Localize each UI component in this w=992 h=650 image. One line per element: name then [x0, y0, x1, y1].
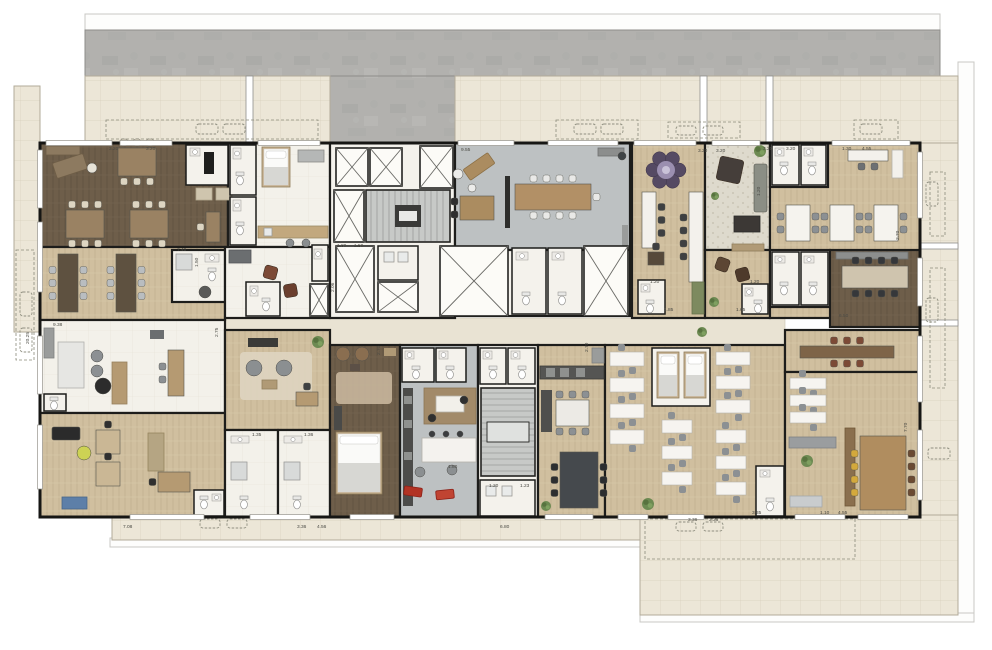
chair [812, 226, 819, 233]
dimension-label: 4.56 [317, 524, 327, 530]
chair [82, 240, 89, 247]
plant-icon [714, 301, 718, 305]
toilet-bowl [810, 286, 817, 295]
sink-basin [441, 353, 446, 358]
toilet-bowl [781, 166, 788, 175]
table [158, 472, 190, 492]
plant-icon [702, 331, 706, 335]
chair [733, 444, 740, 451]
window-strip [618, 515, 648, 520]
chair [799, 370, 806, 377]
dimension-label: 1.80 [448, 464, 458, 470]
dimension-label: 6.80 [500, 524, 510, 530]
window-strip [130, 515, 204, 520]
table [556, 400, 589, 426]
chair [871, 163, 878, 170]
chair [556, 175, 563, 182]
chair [851, 450, 858, 457]
table [168, 350, 184, 396]
concrete-roof-band [330, 76, 455, 143]
furniture-rect [112, 362, 127, 404]
table [842, 266, 908, 288]
dimension-label: 3.20 [716, 148, 726, 154]
sink-basin [747, 290, 752, 295]
chair [451, 198, 458, 205]
table [860, 436, 906, 510]
sink-basin [193, 150, 198, 155]
chair [680, 240, 687, 247]
window-strip [46, 141, 112, 146]
desk [790, 412, 826, 423]
chair [569, 391, 576, 398]
furniture-rect [576, 368, 585, 377]
chair [908, 450, 915, 457]
chair [569, 212, 576, 219]
furniture-rect [248, 338, 278, 347]
toilet-tank [262, 298, 270, 302]
table [96, 430, 120, 454]
chair [138, 267, 145, 274]
terrace-divider-wall [920, 243, 958, 249]
desk [716, 400, 750, 413]
dimension-label: 1.50 [194, 257, 200, 267]
chair [908, 489, 915, 496]
window-strip [350, 515, 394, 520]
chair-round [199, 286, 211, 298]
window-strip [258, 141, 320, 146]
chair [556, 428, 563, 435]
toilet-tank [446, 366, 454, 370]
stair-landing [487, 422, 529, 442]
window-strip [918, 336, 923, 402]
table [66, 210, 104, 238]
furniture-rect [150, 330, 164, 339]
furniture-rect [264, 228, 272, 236]
window-strip [858, 515, 908, 520]
parapet-wall [85, 14, 940, 30]
furniture-rect [196, 188, 212, 200]
table [689, 192, 703, 282]
chair-round [468, 184, 476, 192]
toilet-tank [646, 300, 654, 304]
chair [658, 204, 665, 211]
chair [856, 213, 863, 220]
dimension-label: 1.10 [820, 510, 830, 516]
toilet-bowl [413, 370, 420, 379]
chair [777, 226, 784, 233]
dimension-label: 3.20 [109, 146, 119, 152]
dimension-label: 3.20 [786, 146, 796, 152]
toilet-tank [808, 162, 816, 166]
toilet-bowl [237, 176, 244, 185]
chair [878, 257, 885, 264]
terrace-divider-wall [920, 320, 958, 326]
table [58, 254, 78, 312]
window-strip [832, 141, 910, 146]
chair [147, 178, 154, 185]
chair [133, 201, 140, 208]
chair-round [429, 431, 435, 437]
window-strip [634, 141, 696, 146]
chair [600, 490, 607, 497]
dimension-label: 1.23 [520, 483, 530, 489]
dimension-label: 2.06 [330, 282, 336, 292]
toilet-bowl [519, 370, 526, 379]
furniture-rect [231, 462, 247, 480]
dimension-label: 1.36 [304, 432, 314, 438]
dimension-label: 1.50 [354, 243, 364, 249]
chair [679, 460, 686, 467]
sink-basin [777, 150, 782, 155]
chair [810, 424, 817, 431]
dimension-label: 1.20 [756, 186, 762, 196]
desk [610, 430, 644, 444]
furniture-rect [436, 396, 464, 412]
table [786, 205, 810, 241]
furniture-rect [262, 380, 277, 389]
chair [865, 226, 872, 233]
chair [49, 267, 56, 274]
dimension-label: 1.20 [650, 279, 660, 285]
dimension-label: 4.55 [838, 510, 848, 516]
window-strip [918, 258, 923, 306]
plant-icon [807, 460, 812, 465]
desk [610, 404, 644, 418]
chair-round [618, 152, 626, 160]
dimension-label: 7.08 [123, 524, 133, 530]
chair [865, 213, 872, 220]
window-strip [250, 515, 310, 520]
chair [900, 226, 907, 233]
terrace-divider-wall [700, 76, 707, 143]
sink-basin [556, 254, 561, 259]
sink-basin [806, 150, 811, 155]
chair [80, 280, 87, 287]
window-strip [918, 430, 923, 500]
sink-basin [214, 495, 218, 499]
sink-basin [778, 257, 782, 261]
chair-round [302, 239, 310, 247]
toilet-tank [412, 366, 420, 370]
chair [49, 280, 56, 287]
chair [556, 391, 563, 398]
toilet-bowl [755, 304, 762, 313]
window-strip [712, 141, 760, 146]
toilet-bowl [209, 272, 216, 281]
dimension-label: 2.70 [584, 342, 590, 352]
sink-basin [643, 286, 648, 291]
floor-plan-svg: 9.553.203.203.203.201.304.551.207.401.50… [0, 0, 992, 650]
dimension-label: 3.36 [688, 517, 698, 523]
toilet-bowl [809, 166, 816, 175]
chair [107, 293, 114, 300]
chair [900, 213, 907, 220]
chair [82, 201, 89, 208]
plant-icon [697, 327, 707, 337]
parapet-wall [958, 62, 974, 622]
chair [722, 474, 729, 481]
chair [865, 257, 872, 264]
chair [858, 163, 865, 170]
toilet-bowl [767, 502, 774, 511]
chair [582, 428, 589, 435]
chair [724, 344, 731, 351]
plant-icon [711, 192, 719, 200]
plant-icon [313, 338, 318, 343]
furniture-rect-rotated [403, 486, 422, 497]
dimension-label: 3.35 [752, 510, 762, 516]
toilet-bowl [559, 296, 566, 305]
chair [159, 363, 166, 370]
dimension-label: 1.65 [736, 307, 746, 313]
window-strip [38, 425, 43, 489]
chair [138, 280, 145, 287]
chair [304, 383, 311, 390]
chair [49, 293, 56, 300]
furniture-rect [404, 452, 412, 460]
dimension-label: 3.36 [297, 524, 307, 530]
chair [582, 391, 589, 398]
chair-round [91, 365, 103, 377]
toilet-bowl [201, 500, 208, 509]
sink-basin [291, 437, 295, 441]
desk [716, 376, 750, 389]
terrace-left-strip [14, 86, 40, 332]
toilet-tank [236, 172, 244, 176]
chair [844, 337, 851, 344]
furniture-rect [692, 282, 704, 314]
table [460, 196, 494, 220]
toilet-tank [208, 268, 216, 272]
window-strip [458, 141, 514, 146]
bed-blanket [659, 375, 677, 396]
plant-icon [643, 500, 648, 505]
chair [831, 337, 838, 344]
pouf [283, 283, 298, 298]
furniture-rect [789, 437, 836, 448]
plant-icon [802, 457, 807, 462]
toilet-tank [558, 292, 566, 296]
dimension-label: 3.20 [763, 146, 773, 152]
window-strip [545, 515, 593, 520]
chair-round [95, 378, 111, 394]
toilet-tank [754, 300, 762, 304]
chair [159, 201, 166, 208]
chair-round [355, 347, 369, 361]
chair [95, 240, 102, 247]
plant-icon [712, 193, 716, 197]
chair [680, 214, 687, 221]
dimension-label: 6.50 [839, 313, 849, 319]
chair [821, 226, 828, 233]
chair [724, 392, 731, 399]
plant-icon [710, 298, 715, 303]
chair [629, 419, 636, 426]
chair [821, 213, 828, 220]
chair-round [415, 467, 425, 477]
chair [856, 226, 863, 233]
dimension-label: 3.20 [146, 146, 156, 152]
chair [653, 243, 660, 250]
furniture-rect [284, 462, 300, 480]
bed-blanket [686, 375, 704, 396]
dimension-label: 1.85 [664, 307, 674, 313]
chair [735, 390, 742, 397]
furniture-rect [176, 254, 192, 270]
furniture-rect [502, 486, 512, 496]
bed-pillow [340, 436, 378, 444]
furniture-rect [298, 150, 324, 162]
desk [610, 352, 644, 366]
toilet-bowl [781, 286, 788, 295]
chair [735, 414, 742, 421]
chair [543, 175, 550, 182]
chair [80, 267, 87, 274]
table [874, 205, 898, 241]
table [800, 346, 894, 358]
furniture-rect [734, 216, 760, 232]
furniture-rect [58, 342, 84, 388]
dimension-label: 2.70 [895, 230, 901, 240]
chair-round [286, 239, 294, 247]
furniture-rect [592, 348, 604, 363]
furniture-rect [46, 146, 80, 155]
toilet-bowl [523, 296, 530, 305]
bed-pillow [266, 151, 286, 158]
toilet-tank [522, 292, 530, 296]
plant-icon [312, 336, 324, 348]
terrace-south-east [640, 515, 958, 615]
furniture-rect [148, 433, 164, 471]
table [560, 452, 598, 508]
furniture-rect [790, 496, 822, 507]
dimension-label: 1.30 [842, 146, 852, 152]
furniture-rect [334, 406, 342, 430]
chair [159, 240, 166, 247]
chair [658, 230, 665, 237]
chair [551, 477, 558, 484]
chair [451, 211, 458, 218]
chair [812, 213, 819, 220]
chair [69, 201, 76, 208]
table [642, 192, 656, 248]
chair [891, 290, 898, 297]
chair [799, 404, 806, 411]
sink-basin [210, 256, 215, 261]
bed-pillow [688, 356, 702, 364]
chair [733, 470, 740, 477]
toilet-bowl [647, 304, 654, 313]
furniture-rect [404, 396, 412, 404]
chair [569, 428, 576, 435]
chair [105, 453, 112, 460]
dimension-label: 2.70 [376, 345, 382, 355]
chair [530, 212, 537, 219]
table [118, 148, 156, 176]
window-strip [38, 222, 43, 292]
chair [851, 463, 858, 470]
chair [569, 175, 576, 182]
bed-blanket [264, 167, 288, 185]
desk [716, 482, 746, 495]
dimension-label: 3.20 [698, 148, 708, 154]
plant-icon [715, 195, 718, 198]
furniture-rect [384, 252, 394, 262]
desk [610, 378, 644, 392]
chair [799, 387, 806, 394]
chair [69, 240, 76, 247]
generated-plan-layers: 9.553.203.203.203.201.304.551.207.401.50… [14, 14, 974, 622]
terrace-divider-wall [246, 76, 253, 143]
plant-icon [542, 502, 547, 507]
sink-basin [235, 203, 240, 208]
chair [629, 367, 636, 374]
furniture-rect [541, 390, 552, 432]
dimension-label: 1.20 [750, 279, 760, 285]
pouf [716, 156, 744, 184]
chair [851, 489, 858, 496]
toilet-bowl [51, 401, 58, 410]
plant-icon [546, 505, 550, 509]
window-strip [668, 515, 704, 520]
chair [134, 178, 141, 185]
chair [159, 376, 166, 383]
toilet-tank [780, 162, 788, 166]
sink-basin [238, 437, 242, 441]
toilet-tank [766, 498, 774, 502]
chair [95, 201, 102, 208]
chair [629, 393, 636, 400]
furniture-rect [229, 250, 251, 263]
desk [790, 378, 826, 389]
dimension-label: 2.75 [214, 327, 220, 337]
chair [197, 224, 204, 231]
bed-blanket [338, 463, 380, 492]
desk [662, 446, 692, 459]
stair-landing [399, 211, 417, 221]
sink-basin [763, 471, 767, 475]
furniture-rect [404, 420, 412, 428]
furniture-rect-rotated [436, 489, 455, 500]
toilet-tank [236, 222, 244, 226]
chair [852, 290, 859, 297]
plant-icon [642, 498, 654, 510]
pod-table [662, 166, 670, 174]
furniture-rect [204, 152, 214, 174]
toilet-tank [240, 496, 248, 500]
toilet-bowl [294, 500, 301, 509]
chair [105, 421, 112, 428]
chair [543, 212, 550, 219]
chair [852, 257, 859, 264]
sink-basin [316, 252, 321, 257]
chair [618, 344, 625, 351]
rug [336, 372, 392, 404]
desk [790, 395, 826, 406]
chair [722, 422, 729, 429]
chair [680, 227, 687, 234]
chair [138, 293, 145, 300]
chair [680, 253, 687, 260]
furniture-rect [350, 364, 360, 371]
dimension-label: 1.20 [489, 483, 499, 489]
chair [668, 464, 675, 471]
toilet-tank [50, 397, 58, 401]
chair [891, 257, 898, 264]
sofa [52, 427, 80, 440]
dimension-label: 7.70 [903, 422, 909, 432]
chair-round [276, 360, 292, 376]
